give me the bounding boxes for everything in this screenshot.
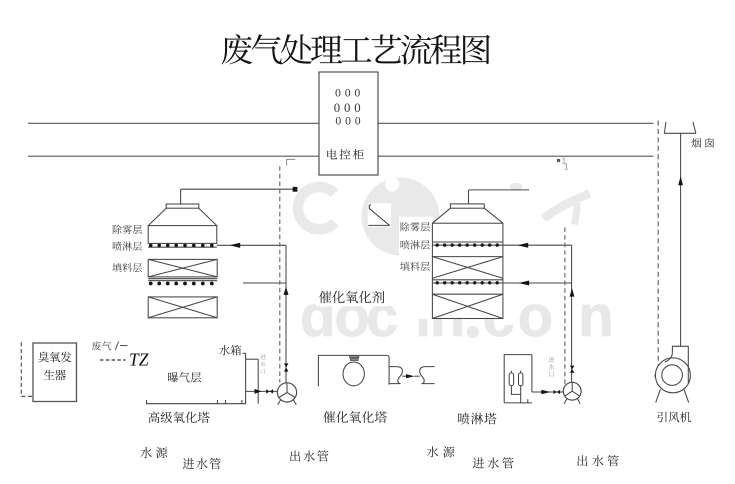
svg-text:000: 000 xyxy=(335,114,364,128)
svg-text:n: n xyxy=(578,284,613,349)
svg-text:1: 1 xyxy=(564,163,569,172)
svg-text:o: o xyxy=(518,284,553,349)
svg-text:TZ: TZ xyxy=(129,350,149,370)
svg-text:000: 000 xyxy=(335,85,364,99)
